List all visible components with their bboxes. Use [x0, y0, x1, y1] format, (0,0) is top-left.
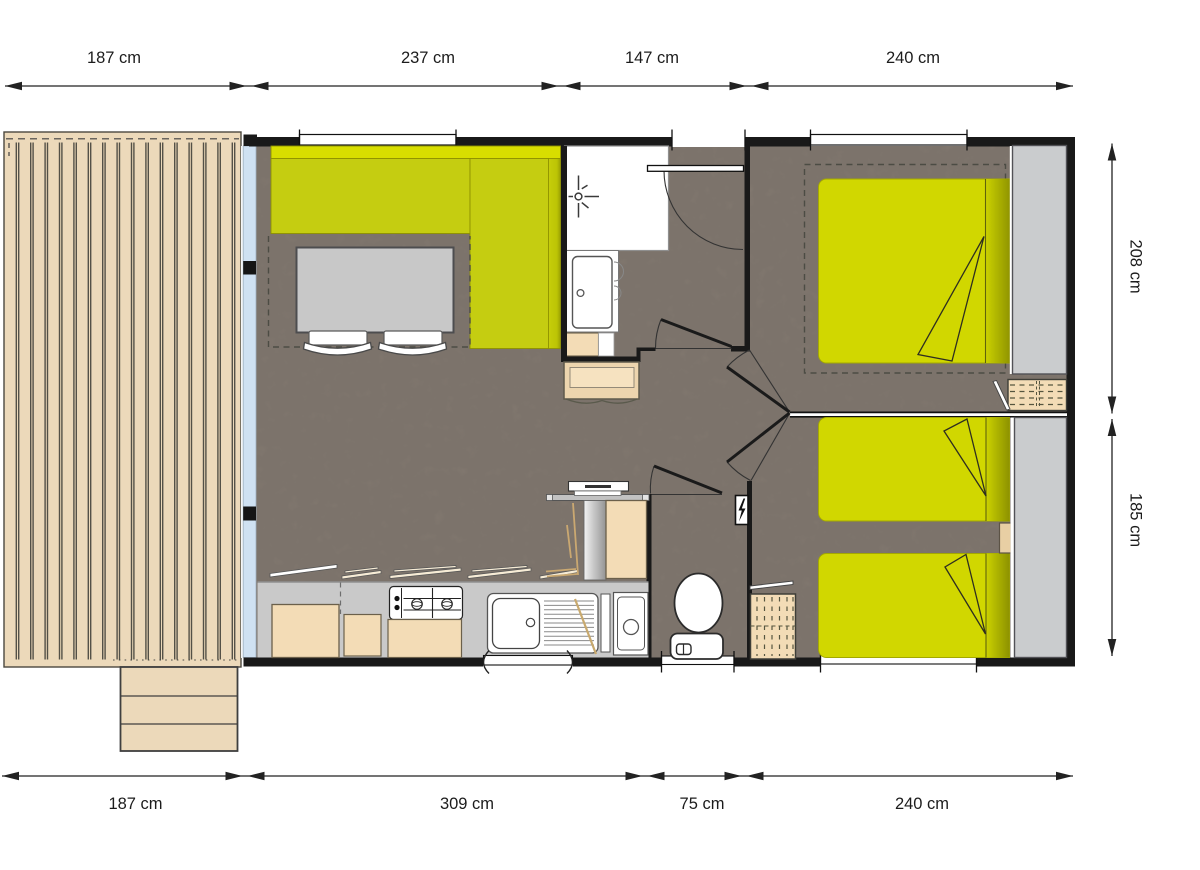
- svg-text:75 cm: 75 cm: [680, 795, 725, 813]
- svg-text:187 cm: 187 cm: [108, 795, 162, 813]
- svg-text:309 cm: 309 cm: [440, 795, 494, 813]
- svg-text:185 cm: 185 cm: [1127, 493, 1145, 547]
- svg-text:187 cm: 187 cm: [87, 49, 141, 67]
- svg-text:208 cm: 208 cm: [1127, 239, 1145, 293]
- svg-text:240 cm: 240 cm: [886, 49, 940, 67]
- svg-text:237 cm: 237 cm: [401, 49, 455, 67]
- svg-text:147 cm: 147 cm: [625, 49, 679, 67]
- svg-text:240 cm: 240 cm: [895, 795, 949, 813]
